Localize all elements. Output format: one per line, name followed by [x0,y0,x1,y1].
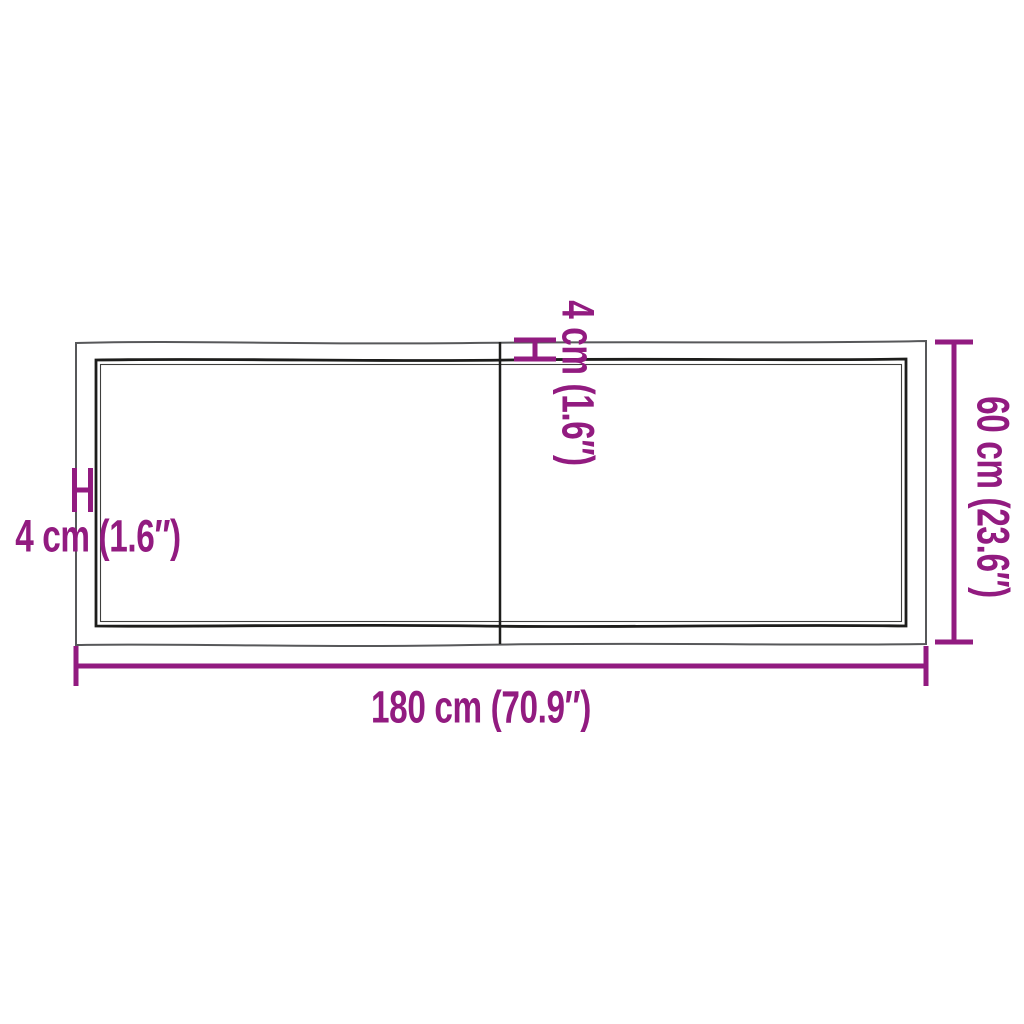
product-dimension-diagram: 4 cm (1.6″) 180 cm (70.9″) 4 cm (1.6″) 6… [0,0,1024,1024]
depth-label-text: 60 cm (23.6″) [971,396,1016,598]
thickness-bracket-top [514,338,556,362]
thickness-left-label: 4 cm (1.6″) [0,514,210,559]
width-dimension-line [76,646,926,686]
depth-label: 60 cm (23.6″) [971,361,1016,634]
thickness-bracket-left [72,468,93,512]
thickness-top-label-text: 4 cm (1.6″) [556,300,601,466]
thickness-top-label: 4 cm (1.6″) [556,271,601,495]
width-label-text: 180 cm (70.9″) [371,685,591,730]
thickness-left-label-text: 4 cm (1.6″) [15,514,181,559]
width-label: 180 cm (70.9″) [332,685,629,730]
